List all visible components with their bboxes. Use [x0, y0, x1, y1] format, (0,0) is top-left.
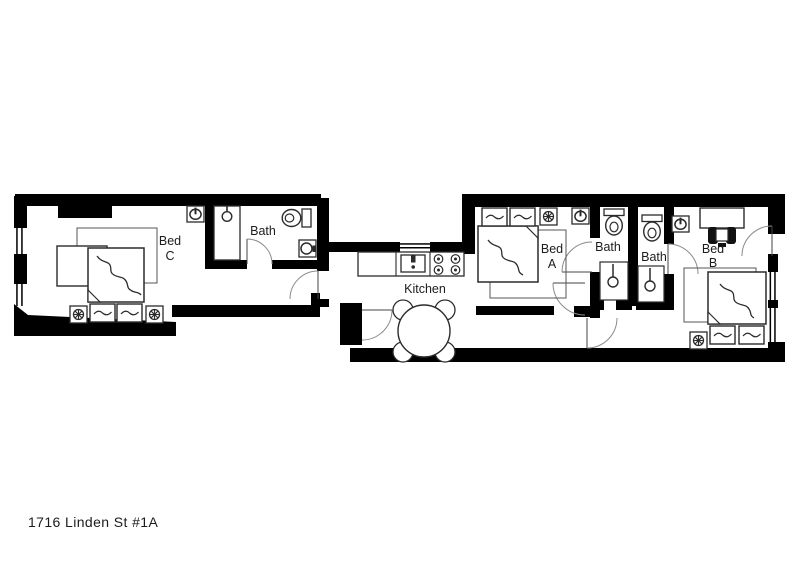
- room-label-bed-a-line2: A: [548, 257, 557, 271]
- dining-set: [393, 300, 455, 362]
- window-left-lower: [16, 284, 23, 306]
- room-label-bed-b-line1: Bed: [702, 242, 724, 256]
- round-table-icon: [398, 305, 450, 357]
- room-label-kitchen: Kitchen: [404, 282, 446, 296]
- room-label-bed-a-line1: Bed: [541, 242, 563, 256]
- door-bath1: [247, 239, 272, 264]
- bed-icon: [478, 226, 538, 282]
- room-bed-a: Bed A: [478, 208, 589, 298]
- room-bath-1: Bath: [214, 206, 317, 260]
- door-bed-b: [742, 226, 772, 256]
- room-label-bed-b-line2: B: [709, 256, 717, 270]
- door-bath3: [668, 244, 698, 274]
- window-right-upper: [770, 272, 776, 300]
- room-label-bed-c-line1: Bed: [159, 234, 181, 248]
- pillow-icon: [482, 208, 507, 226]
- wall-light-icon: [672, 216, 689, 232]
- nightstand-lamp-icon: [70, 306, 87, 323]
- toilet-icon: [642, 215, 662, 241]
- nightstand-lamp-icon: [146, 306, 163, 323]
- bed-icon: [708, 272, 766, 324]
- wall-light-icon: [187, 206, 204, 222]
- floorplan-page: Bed C Bath: [0, 0, 800, 566]
- room-bath-2: Bath: [595, 209, 628, 300]
- kitchen-sink-icon: [401, 255, 425, 272]
- door-hall: [587, 318, 617, 348]
- room-kitchen: Kitchen: [358, 252, 464, 362]
- room-label-bath-2: Bath: [595, 240, 621, 254]
- window-left-upper: [16, 228, 23, 254]
- pillow-icon: [710, 326, 735, 344]
- room-bath-3: Bath: [638, 215, 667, 302]
- nightstand-lamp-icon: [690, 332, 707, 349]
- room-label-bath-1: Bath: [250, 224, 276, 238]
- window-kitchen: [400, 243, 430, 248]
- pillow-icon: [117, 304, 142, 322]
- window-right-lower: [770, 308, 776, 342]
- pillow-icon: [739, 326, 764, 344]
- toilet-icon: [282, 209, 311, 227]
- bed-icon: [88, 248, 144, 302]
- pillow-icon: [90, 304, 115, 322]
- desk: [700, 208, 744, 228]
- door-entry: [362, 310, 392, 340]
- floorplan-svg: Bed C Bath: [0, 0, 800, 566]
- pedestal-sink-icon: [299, 240, 317, 257]
- nightstand-lamp-icon: [540, 208, 557, 225]
- room-label-bed-c-line2: C: [165, 249, 174, 263]
- address-title: 1716 Linden St #1A: [28, 514, 158, 530]
- pillow-icon: [510, 208, 535, 226]
- wall-light-icon: [572, 208, 589, 224]
- room-bed-b: Bed B: [672, 208, 766, 349]
- toilet-icon: [604, 209, 624, 235]
- room-label-bath-3: Bath: [641, 250, 667, 264]
